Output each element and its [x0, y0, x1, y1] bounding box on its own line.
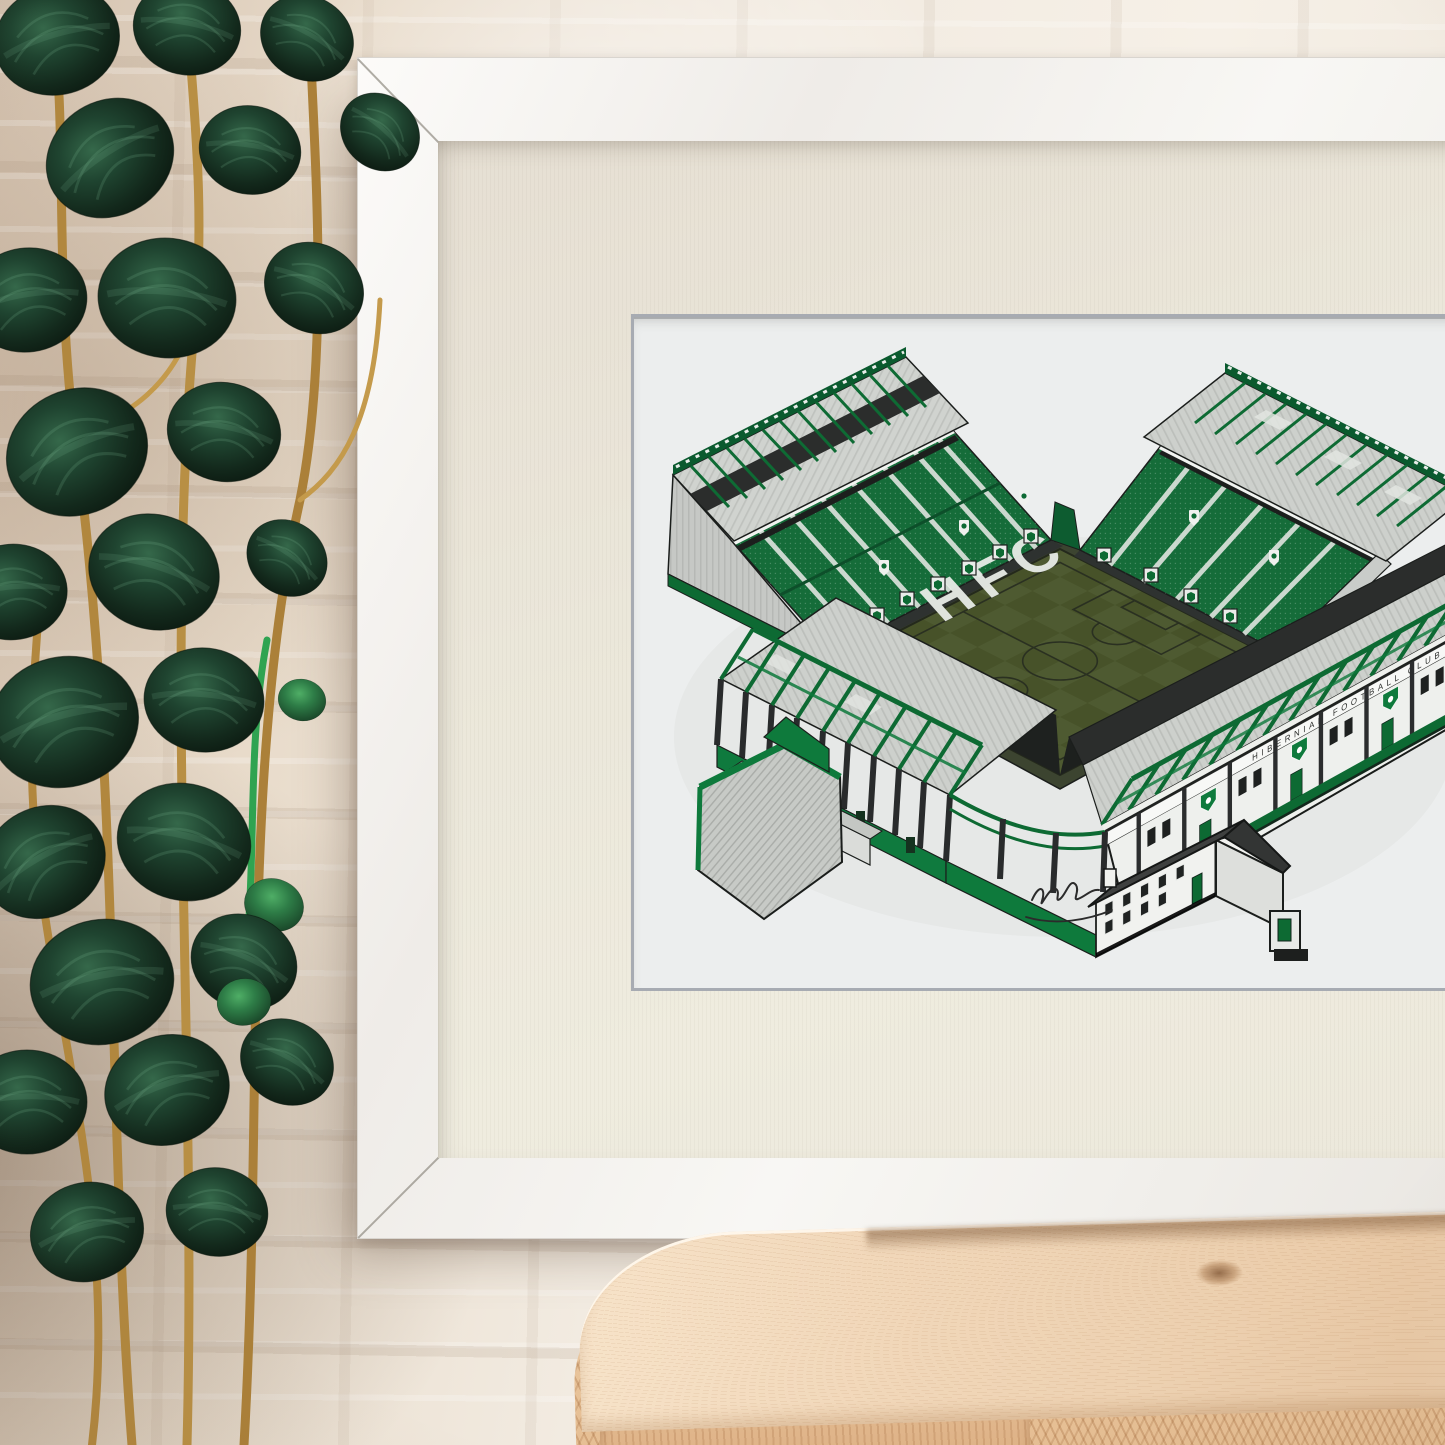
eucalyptus-plant — [0, 0, 452, 1445]
art-print: HFC — [631, 314, 1445, 991]
frame-mat: HFC — [438, 141, 1445, 1158]
photo-scene: HFC — [0, 0, 1445, 1445]
stadium-illustration: HFC — [634, 317, 1445, 989]
wooden-table — [536, 1207, 1445, 1445]
cottage-porch — [1270, 911, 1308, 961]
picture-frame: HFC — [357, 57, 1445, 1239]
plant-leaves — [0, 0, 436, 1294]
